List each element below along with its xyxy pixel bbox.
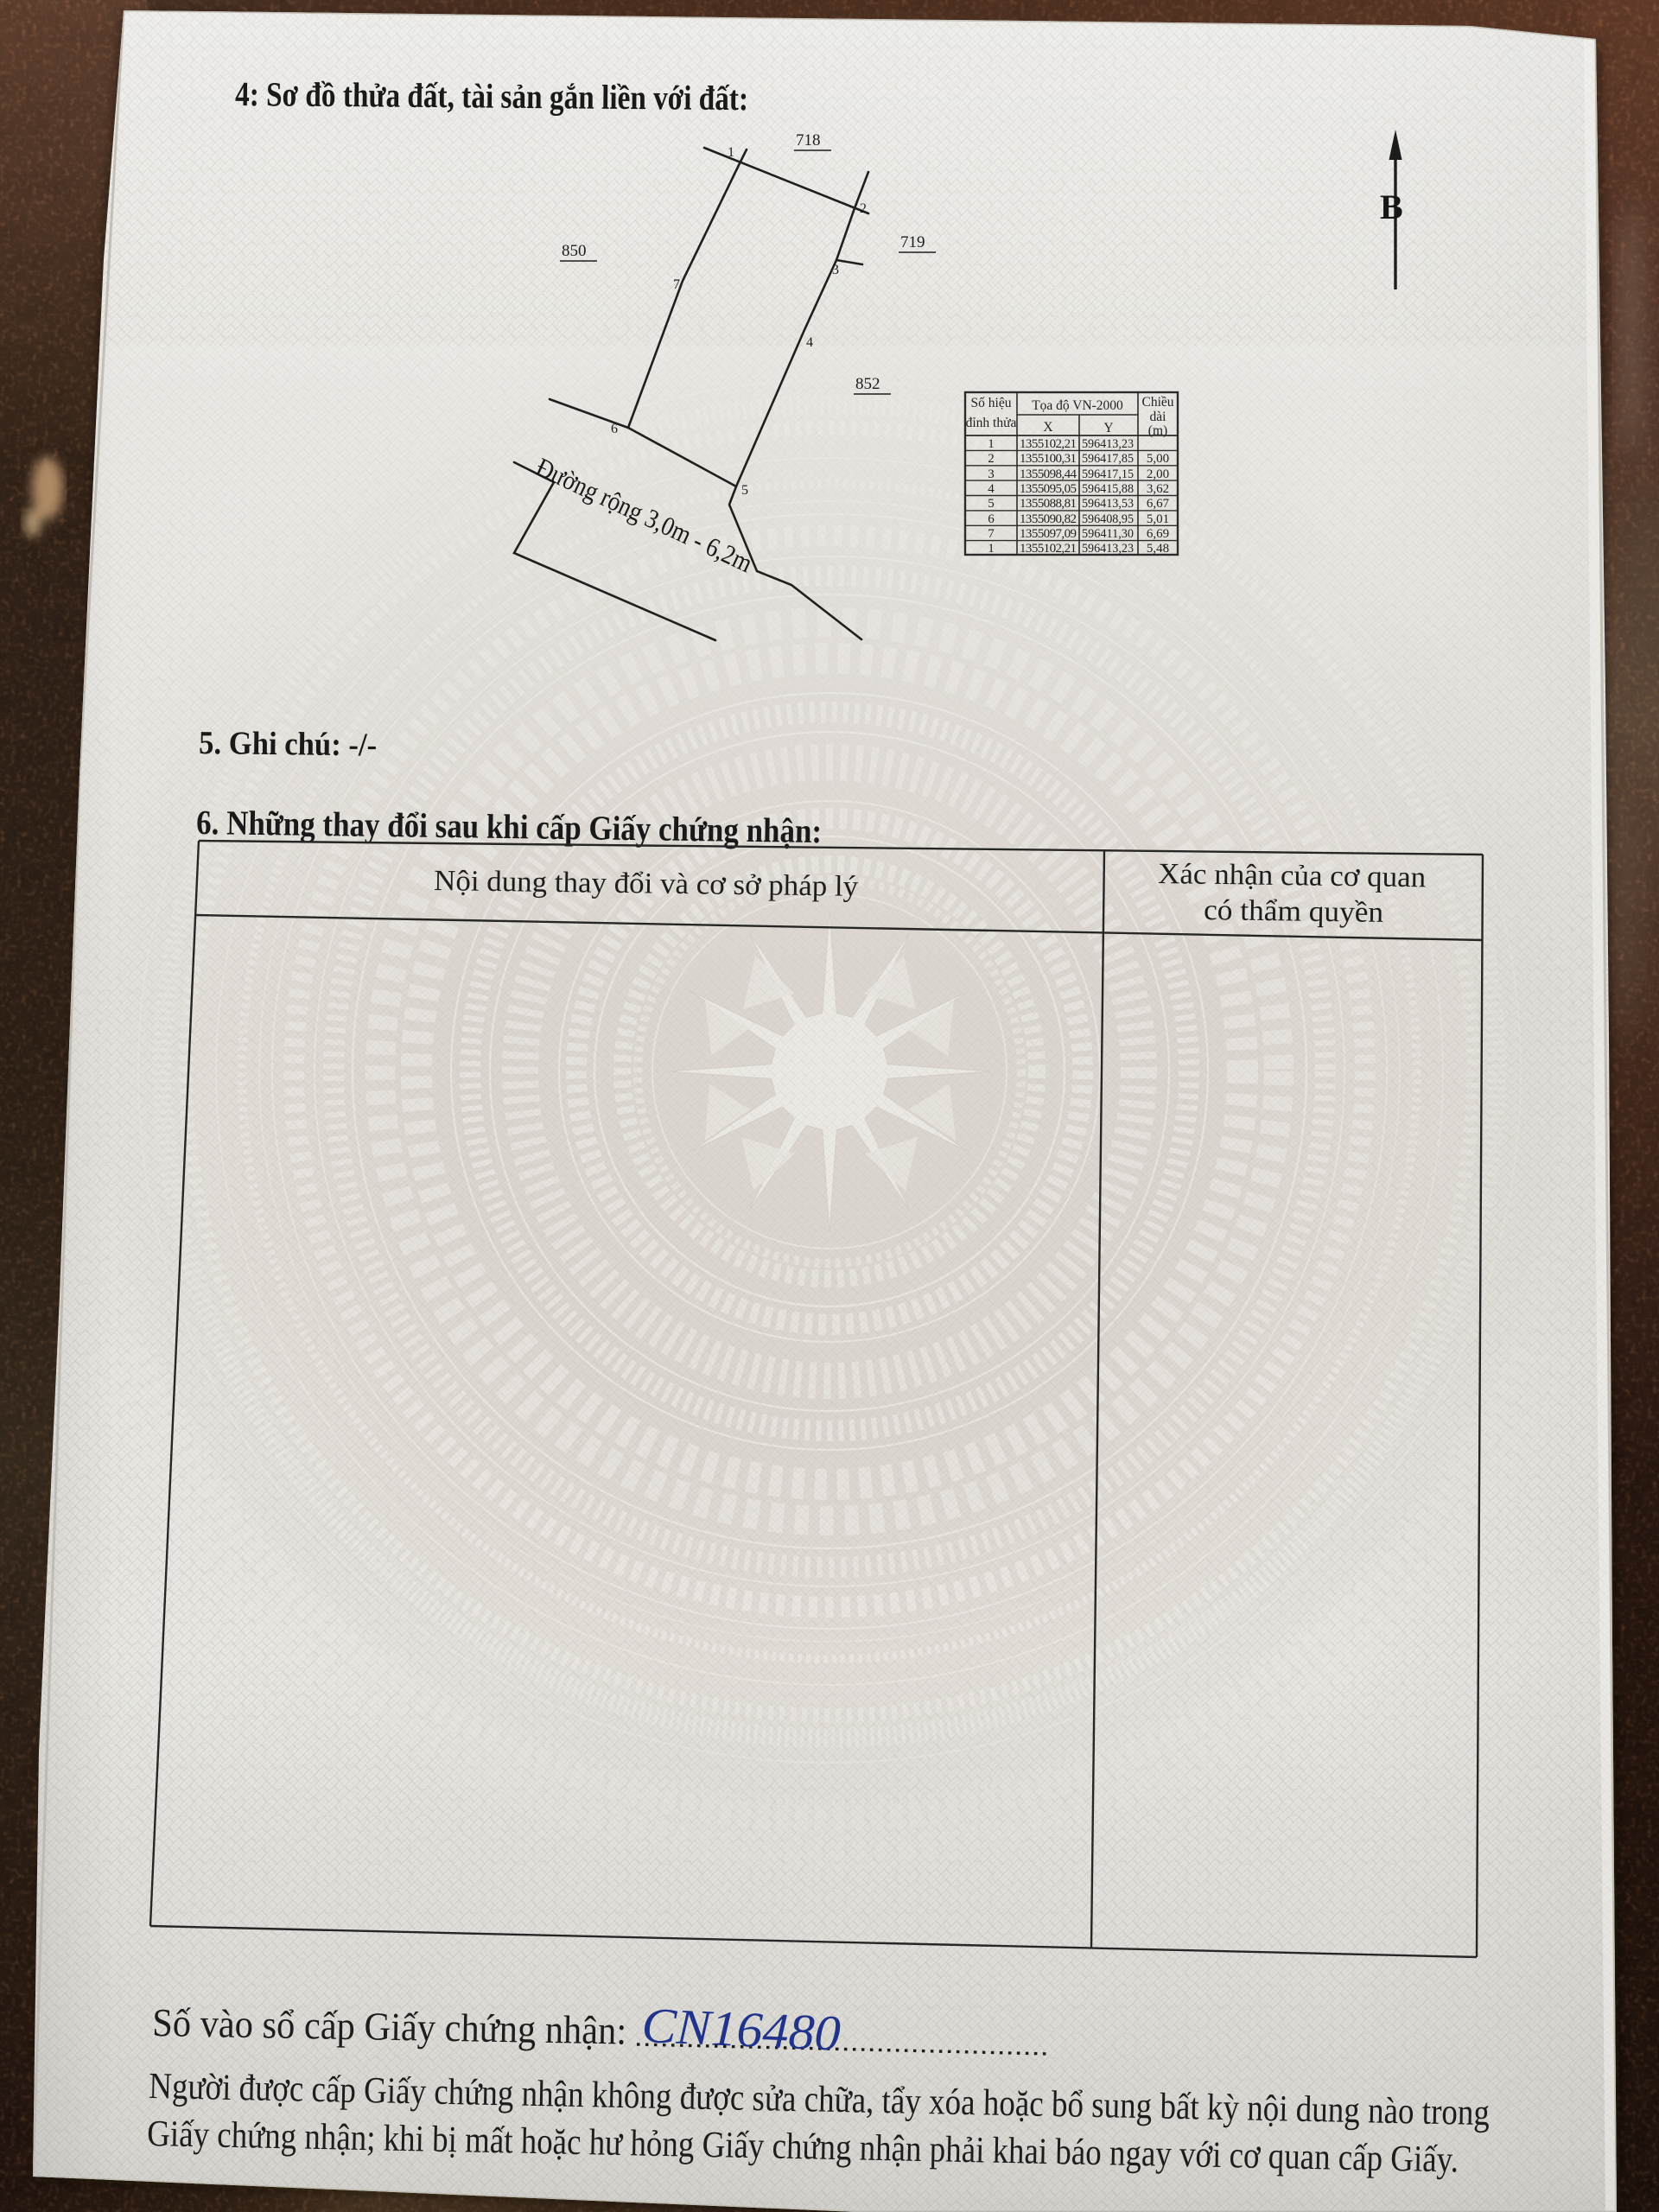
svg-text:1355095,05: 1355095,05 xyxy=(1020,482,1077,496)
svg-text:Số vào sổ cấp Giấy chứng nhận:: Số vào sổ cấp Giấy chứng nhận: xyxy=(152,2000,627,2053)
svg-text:6: 6 xyxy=(988,512,995,526)
svg-text:1355100,31: 1355100,31 xyxy=(1020,452,1077,466)
svg-text:1355102,21: 1355102,21 xyxy=(1020,542,1077,556)
svg-text:5,01: 5,01 xyxy=(1147,512,1169,526)
svg-text:5. Ghi chú: -/-: 5. Ghi chú: -/- xyxy=(199,725,377,764)
svg-text:1355102,21: 1355102,21 xyxy=(1020,437,1077,451)
svg-text:4: 4 xyxy=(806,335,813,350)
svg-text:5: 5 xyxy=(741,483,748,498)
svg-text:Tọa độ VN-2000: Tọa độ VN-2000 xyxy=(1032,398,1123,413)
svg-text:1355098,44: 1355098,44 xyxy=(1020,467,1077,481)
svg-text:3: 3 xyxy=(988,467,995,481)
svg-text:1355088,81: 1355088,81 xyxy=(1020,497,1077,511)
svg-text:7: 7 xyxy=(673,277,680,292)
svg-text:596411,30: 596411,30 xyxy=(1082,527,1134,541)
svg-text:CN16480: CN16480 xyxy=(640,1997,842,2062)
svg-text:5,00: 5,00 xyxy=(1147,452,1169,466)
svg-text:1: 1 xyxy=(728,145,734,160)
svg-text:1355090,82: 1355090,82 xyxy=(1020,512,1077,526)
svg-text:718: 718 xyxy=(796,131,821,149)
svg-text:850: 850 xyxy=(562,242,587,260)
svg-text:7: 7 xyxy=(988,527,995,541)
svg-text:Xác nhận của cơ quan: Xác nhận của cơ quan xyxy=(1158,858,1426,893)
svg-text:1: 1 xyxy=(988,542,995,556)
svg-text:596413,23: 596413,23 xyxy=(1082,437,1134,451)
svg-text:3,62: 3,62 xyxy=(1147,482,1169,496)
svg-text:Chiều: Chiều xyxy=(1141,395,1173,410)
svg-text:596417,85: 596417,85 xyxy=(1082,452,1134,466)
svg-text:X: X xyxy=(1043,420,1052,435)
svg-text:4: Sơ đồ thửa đất, tài sản gắn: 4: Sơ đồ thửa đất, tài sản gắn liền với … xyxy=(235,74,748,118)
svg-text:596415,88: 596415,88 xyxy=(1082,482,1134,496)
svg-text:2,00: 2,00 xyxy=(1147,467,1169,481)
svg-text:596413,53: 596413,53 xyxy=(1082,497,1134,511)
svg-text:3: 3 xyxy=(832,263,839,277)
svg-text:Y: Y xyxy=(1103,421,1113,435)
svg-text:4: 4 xyxy=(988,482,995,496)
svg-text:6,69: 6,69 xyxy=(1147,527,1169,541)
svg-text:5: 5 xyxy=(988,497,995,511)
svg-text:1: 1 xyxy=(988,437,995,451)
svg-text:Nội dung thay đổi và cơ sở phá: Nội dung thay đổi và cơ sở pháp lý xyxy=(434,865,858,903)
svg-text:5,48: 5,48 xyxy=(1147,542,1169,556)
svg-text:2: 2 xyxy=(860,201,867,216)
svg-text:596413,23: 596413,23 xyxy=(1082,542,1134,556)
svg-text:852: 852 xyxy=(855,375,880,393)
svg-text:dài: dài xyxy=(1150,410,1167,424)
svg-text:719: 719 xyxy=(900,233,925,251)
svg-text:596417,15: 596417,15 xyxy=(1082,467,1134,481)
svg-text:Số hiệu: Số hiệu xyxy=(971,396,1012,410)
svg-text:đỉnh thửa: đỉnh thửa xyxy=(966,416,1017,430)
svg-text:6,67: 6,67 xyxy=(1147,497,1170,511)
svg-text:B: B xyxy=(1380,188,1403,226)
svg-text:(m): (m) xyxy=(1148,423,1167,438)
svg-text:596408,95: 596408,95 xyxy=(1082,512,1134,526)
svg-text:có thẩm quyền: có thẩm quyền xyxy=(1204,894,1383,929)
svg-text:2: 2 xyxy=(988,452,995,466)
svg-text:1355097,09: 1355097,09 xyxy=(1020,527,1077,541)
svg-text:6: 6 xyxy=(611,422,618,436)
